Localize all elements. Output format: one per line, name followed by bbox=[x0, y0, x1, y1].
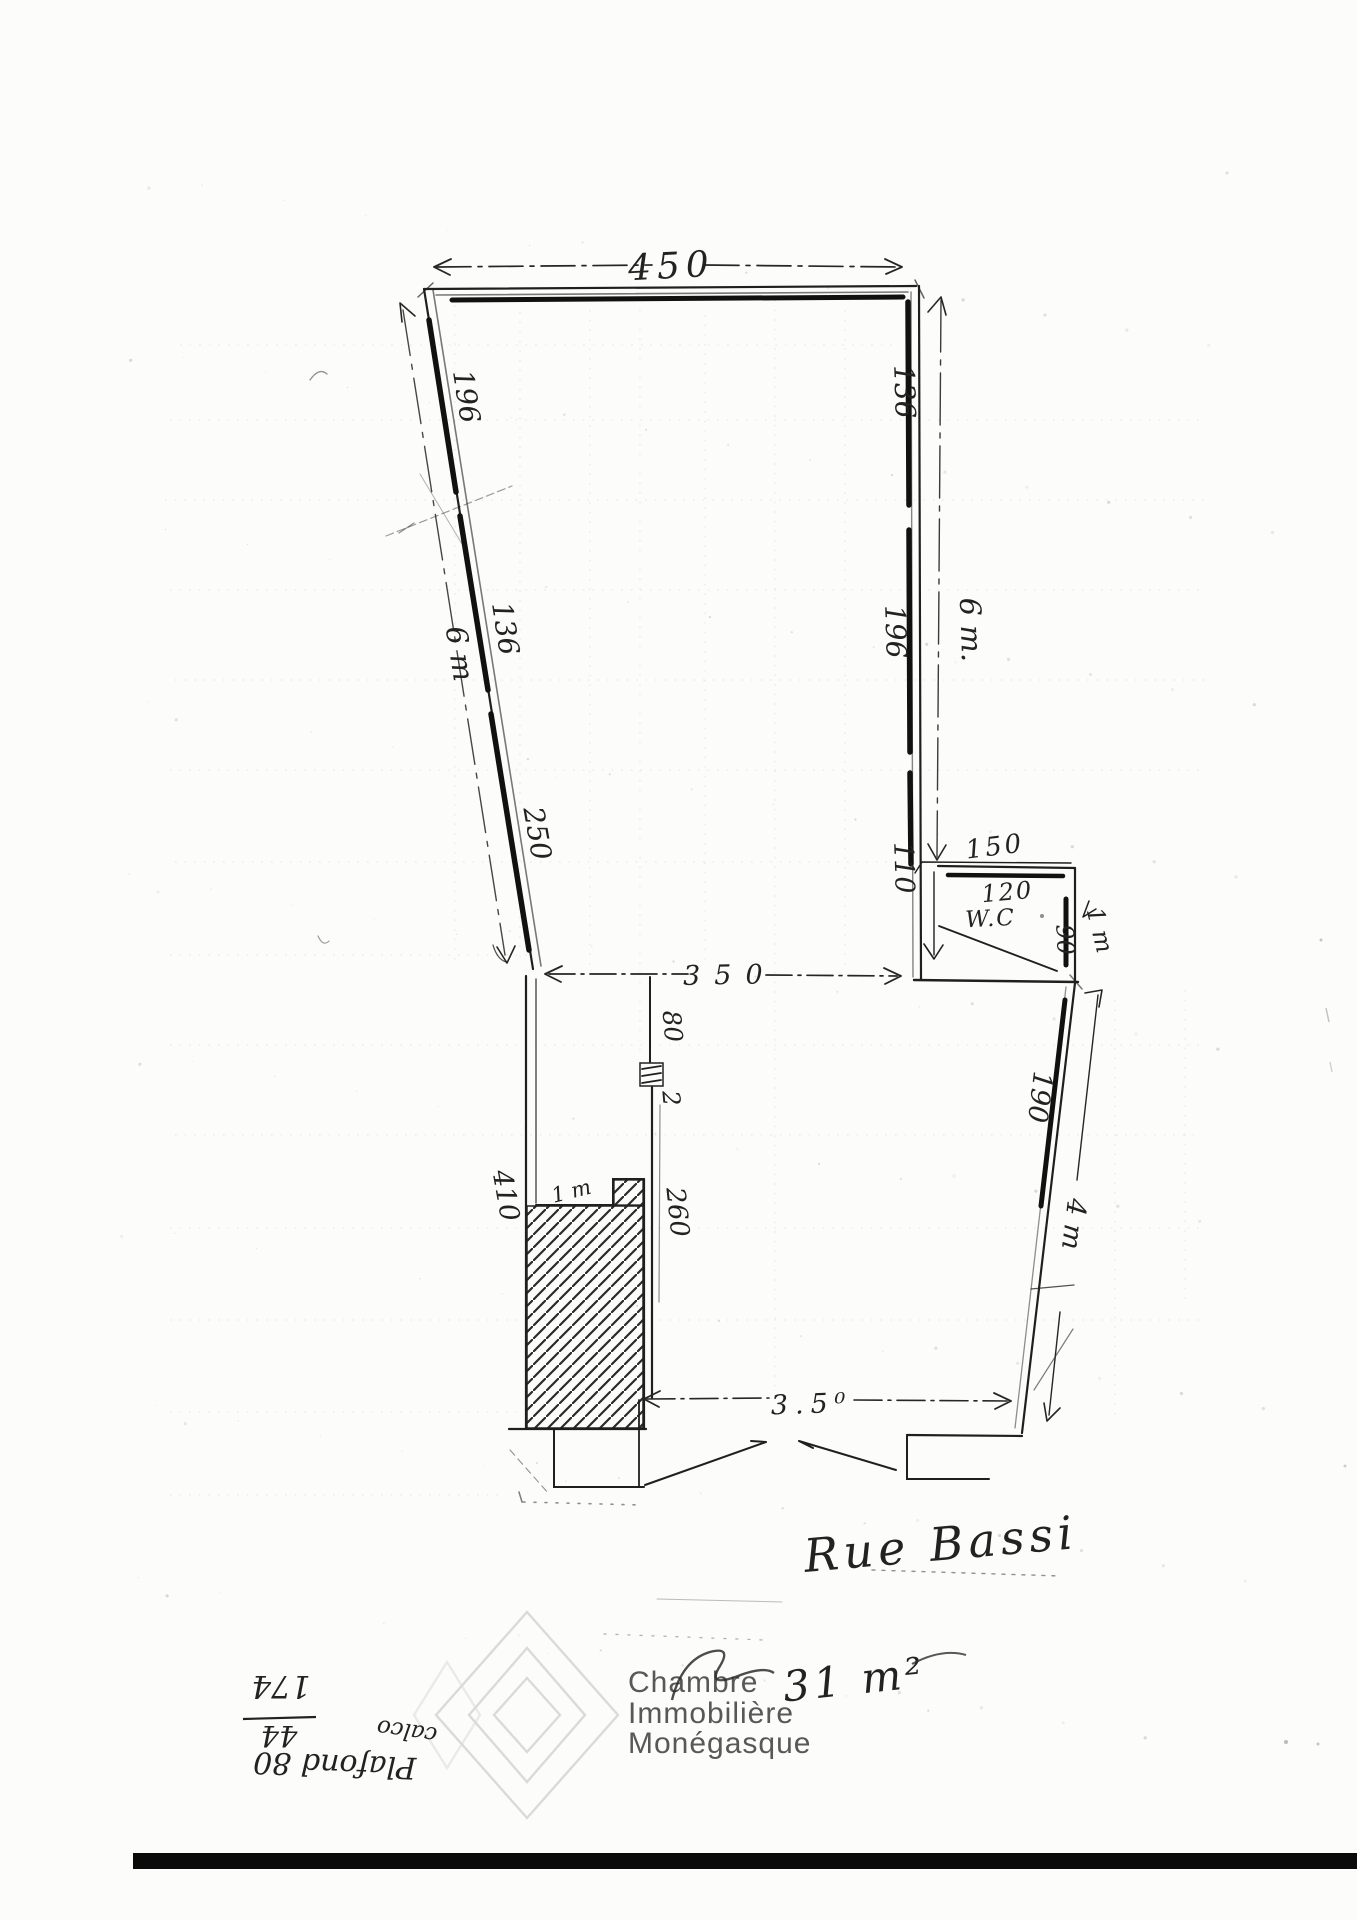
watermark-diamond-logo bbox=[414, 1612, 618, 1818]
wc-room-label: W.C bbox=[965, 905, 1017, 934]
note-line: Plafond 80 bbox=[253, 1744, 418, 1785]
watermark-line1: Chambre bbox=[628, 1666, 758, 1699]
dim-right-wall-top: 136 bbox=[887, 364, 922, 419]
dim-opening-width: 350 bbox=[683, 959, 777, 992]
dim-wc-inner-width: 120 bbox=[980, 876, 1034, 908]
note-word: calco bbox=[375, 1714, 439, 1748]
dim-door: 2 bbox=[656, 1088, 685, 1107]
hatched-block bbox=[527, 1206, 643, 1428]
dim-front-width: 3.5⁰ bbox=[770, 1388, 853, 1422]
upper-room-dimension-lines bbox=[310, 259, 946, 963]
dim-right-wall-bottom: 110 bbox=[887, 841, 920, 894]
dim-inner-wall: 260 bbox=[659, 1185, 694, 1238]
dim-wc-depth: 90 bbox=[1050, 924, 1080, 956]
dim-left-wall-overall: 6 m bbox=[439, 624, 481, 684]
dim-wc-outer-width: 150 bbox=[964, 829, 1026, 866]
note-fraction-under: 174 bbox=[251, 1668, 310, 1704]
faint-grid bbox=[165, 300, 1205, 1495]
hatched-block-small bbox=[614, 1180, 643, 1205]
scanned-floorplan-page: Chambre Immobilière Monégasque bbox=[0, 0, 1357, 1920]
fraction-bar bbox=[243, 1717, 316, 1719]
dim-right-upper: 190 bbox=[1021, 1070, 1058, 1125]
watermark-line2: Immobilière bbox=[628, 1697, 794, 1730]
dim-right-wall-overall: 6 m. bbox=[953, 597, 989, 663]
watermark-line3: Monégasque bbox=[628, 1727, 811, 1760]
scan-edge-bar bbox=[133, 1853, 1357, 1869]
dim-top-width: 450 bbox=[626, 244, 716, 290]
street-name: Rue Bassi bbox=[801, 1505, 1080, 1583]
upside-down-notes: 44 174 calco Plafond 80 bbox=[243, 1668, 439, 1785]
scan-noise bbox=[119, 169, 1274, 1739]
dim-left-height: 410 bbox=[485, 1166, 525, 1223]
dim-right-overall: 4 m bbox=[1055, 1196, 1092, 1252]
dim-partition: 80 bbox=[657, 1009, 689, 1043]
watermark: Chambre Immobilière Monégasque bbox=[414, 1612, 811, 1818]
floorplan-drawing: Chambre Immobilière Monégasque bbox=[0, 0, 1357, 1920]
dim-wc-side-height: 1 m bbox=[1081, 905, 1119, 956]
area-note: 31 m² bbox=[781, 1648, 929, 1712]
dim-left-wall-top: 196 bbox=[446, 368, 487, 426]
edge-marks bbox=[1040, 914, 1347, 1746]
dim-step: 1 m bbox=[549, 1175, 594, 1208]
dim-right-wall-middle: 196 bbox=[878, 604, 913, 659]
